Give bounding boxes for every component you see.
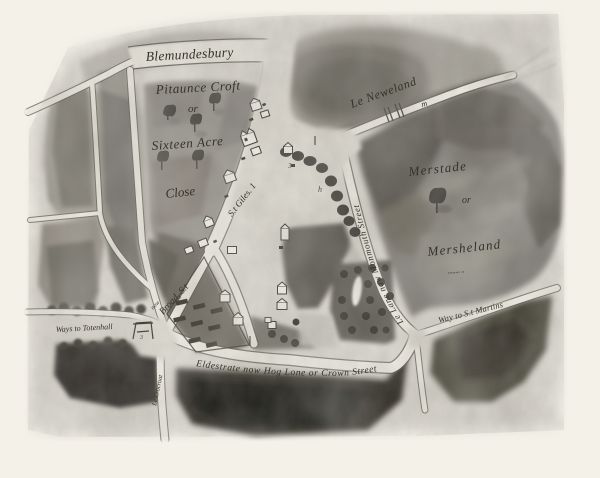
svg-text:or: or: [188, 103, 199, 115]
svg-text:or: or: [462, 195, 471, 206]
svg-text:,,,,,,,, ,,: ,,,,,,,, ,,: [448, 268, 465, 275]
svg-text:Close: Close: [165, 183, 196, 201]
